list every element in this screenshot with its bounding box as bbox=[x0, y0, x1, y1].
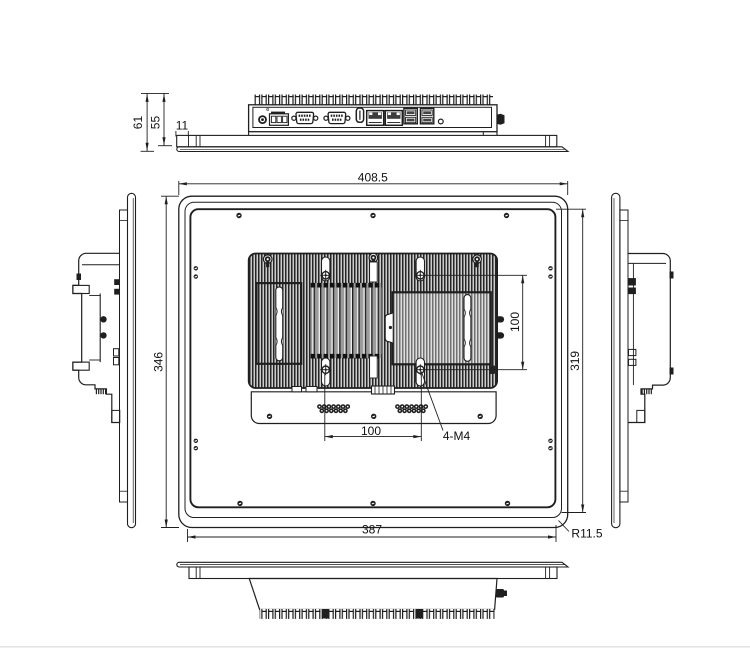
svg-text:319: 319 bbox=[568, 351, 582, 371]
svg-text:100: 100 bbox=[361, 424, 381, 438]
svg-text:100: 100 bbox=[508, 312, 522, 332]
svg-text:408.5: 408.5 bbox=[358, 171, 388, 185]
svg-text:11: 11 bbox=[176, 119, 189, 133]
svg-text:61: 61 bbox=[131, 116, 145, 130]
svg-text:55: 55 bbox=[149, 116, 163, 130]
svg-text:4-M4: 4-M4 bbox=[443, 429, 471, 443]
svg-text:387: 387 bbox=[362, 523, 382, 537]
svg-text:346: 346 bbox=[152, 352, 166, 372]
svg-text:R11.5: R11.5 bbox=[571, 527, 602, 541]
